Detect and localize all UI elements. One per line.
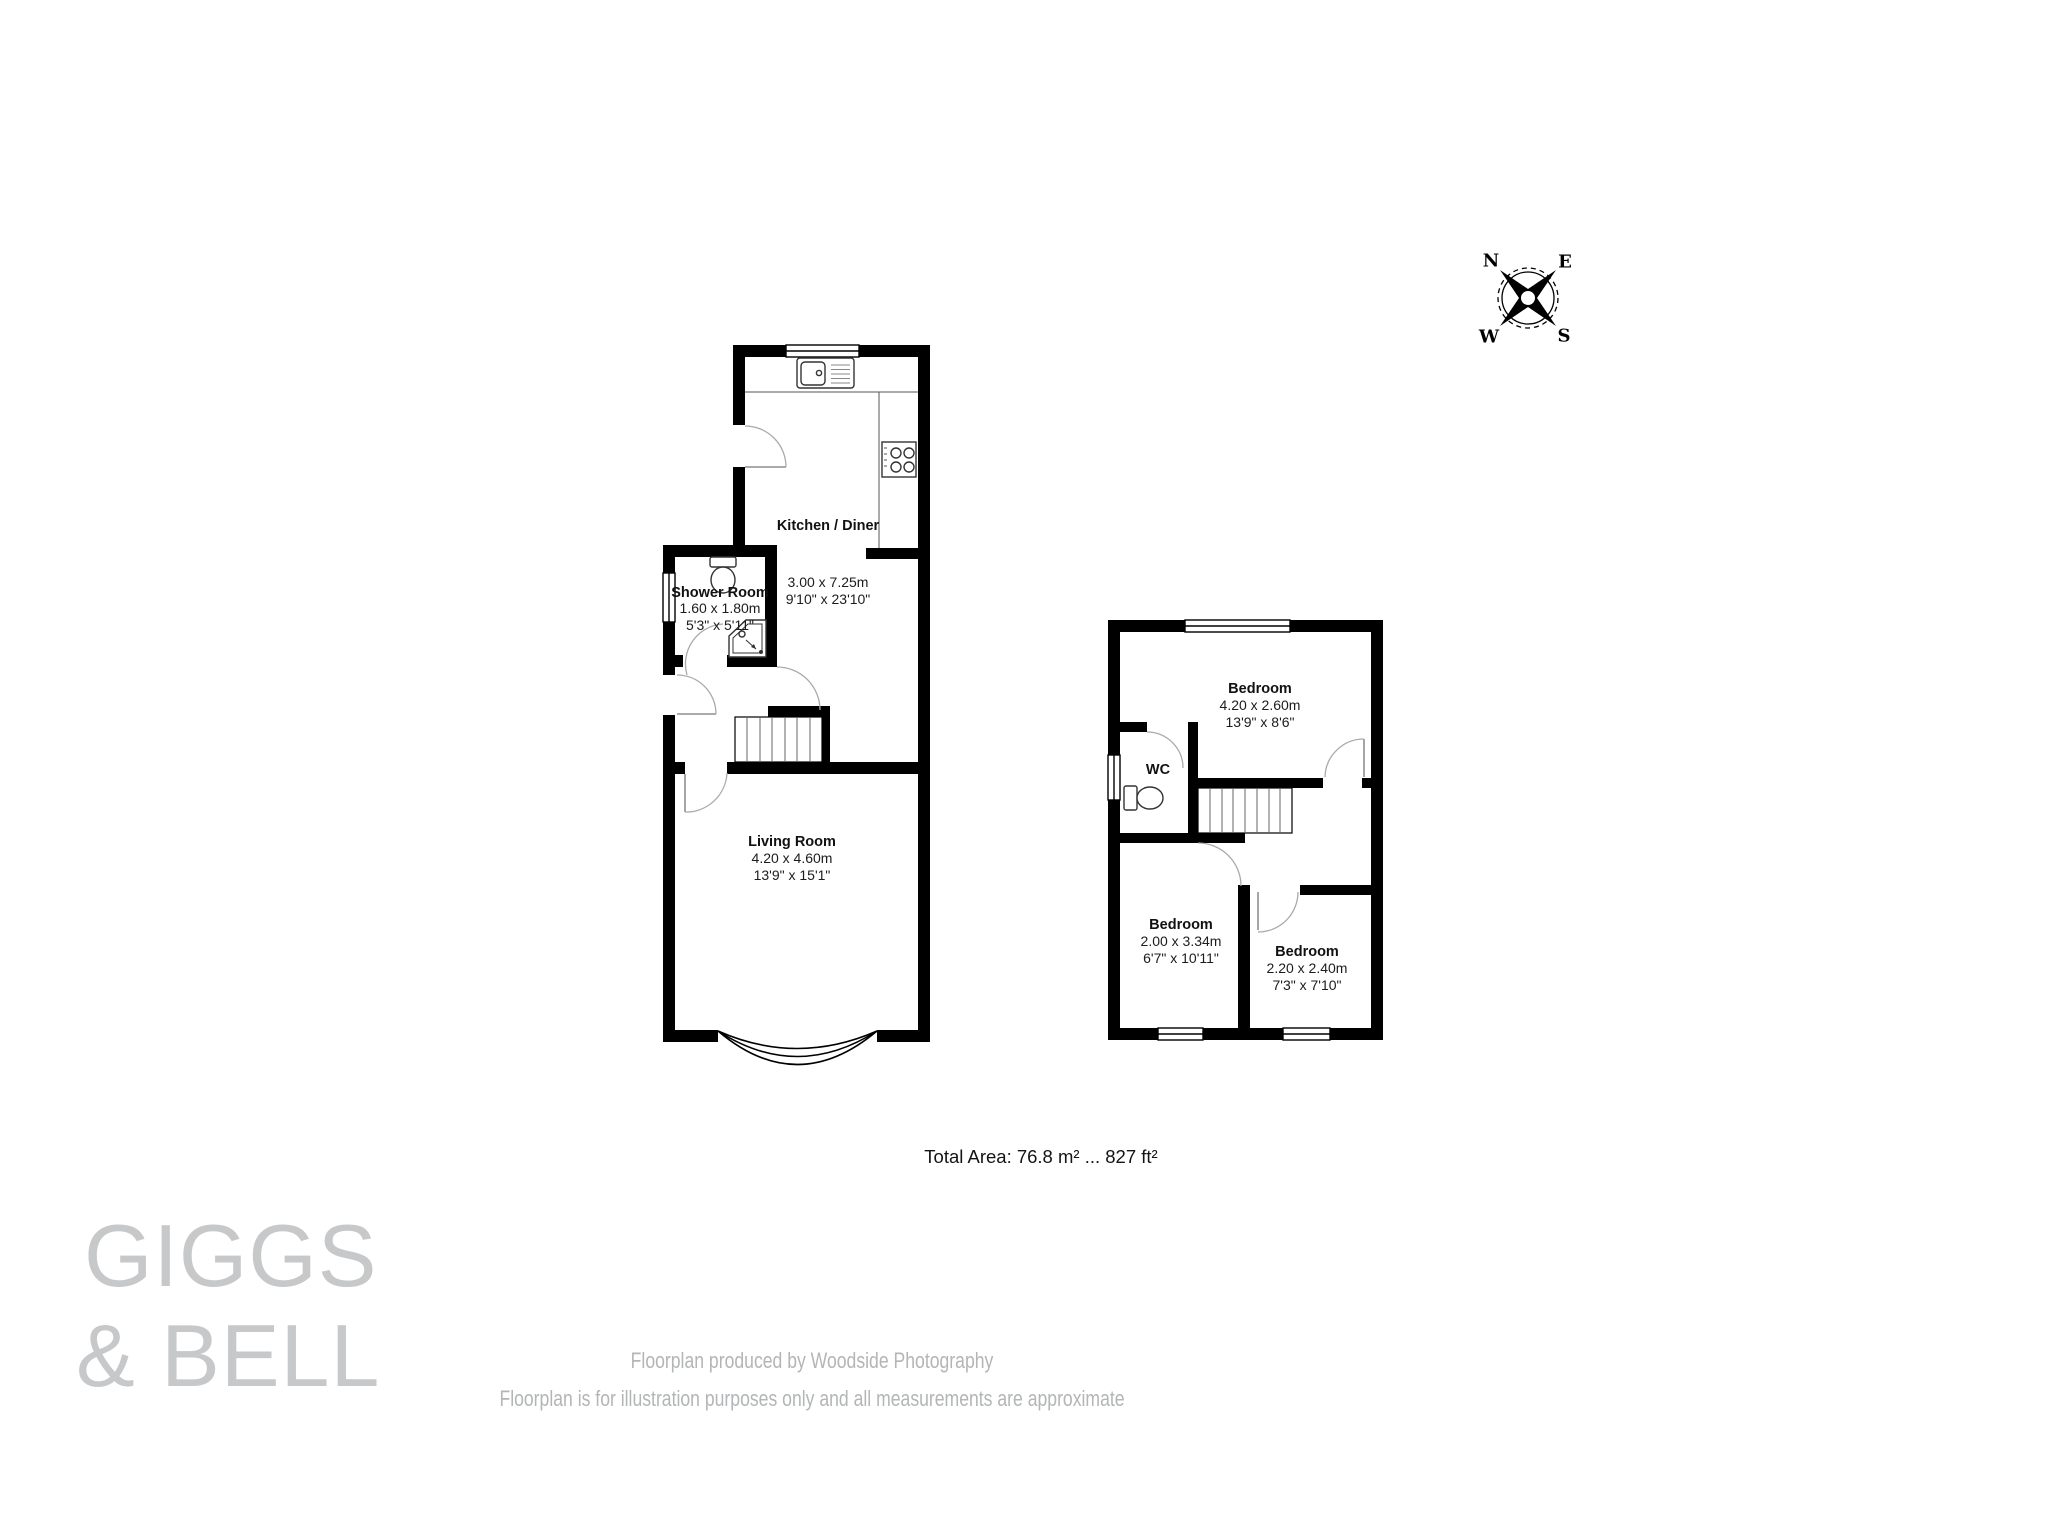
ground-floor-plan bbox=[663, 345, 930, 1065]
room-label-wc: WC bbox=[1146, 762, 1170, 778]
kitchen-window bbox=[786, 345, 859, 357]
room-dims-living-room: 4.20 x 4.60m 13'9" x 15'1" bbox=[752, 850, 833, 883]
room-label-living-room: Living Room bbox=[748, 834, 836, 850]
room-dims-bedroom-3: 2.20 x 2.40m 7'3" x 7'10" bbox=[1267, 960, 1348, 993]
compass-letter-s: S bbox=[1558, 326, 1571, 347]
stairs-ground bbox=[735, 717, 822, 762]
front-door-arc bbox=[677, 675, 716, 714]
bedroom3-window bbox=[1283, 1028, 1330, 1040]
room-dims-bedroom-2: 2.00 x 3.34m 6'7" x 10'11" bbox=[1141, 933, 1222, 966]
compass-rose-icon bbox=[1498, 268, 1558, 328]
logo-text-line2: & BELL bbox=[76, 1312, 380, 1400]
room-dims-kitchen-diner: 3.00 x 7.25m 9'10" x 23'10" bbox=[786, 574, 871, 607]
living-door-arc bbox=[685, 773, 727, 812]
bedroom1-window bbox=[1185, 620, 1290, 632]
room-dims-bedroom-1: 4.20 x 2.60m 13'9" x 8'6" bbox=[1220, 697, 1301, 730]
bedroom2-door-arc bbox=[1198, 843, 1241, 886]
room-dims-shower-room: 1.60 x 1.80m 5'3" x 5'11" bbox=[680, 600, 761, 633]
bedroom3-door-arc bbox=[1258, 892, 1298, 932]
wc-window bbox=[1108, 755, 1120, 800]
stairs-first bbox=[1198, 788, 1292, 833]
room-label-bedroom-1: Bedroom bbox=[1228, 681, 1292, 697]
total-area-text: Total Area: 76.8 m² ... 827 ft² bbox=[924, 1146, 1157, 1168]
bedroom1-door-arc bbox=[1325, 739, 1364, 777]
compass-letter-w: W bbox=[1479, 327, 1499, 348]
toilet-icon-wc bbox=[1124, 786, 1163, 810]
room-label-kitchen-diner: Kitchen / Diner bbox=[777, 518, 879, 534]
bedroom2-window bbox=[1158, 1028, 1203, 1040]
compass-letter-e: E bbox=[1558, 252, 1572, 273]
room-label-shower-room: Shower Room bbox=[671, 585, 768, 601]
floorplan-page: N E W S Kitchen / Diner 3.00 x 7.25m 9'1… bbox=[0, 0, 2048, 1513]
footer-credit-text: Floorplan produced by Woodside Photograp… bbox=[631, 1348, 994, 1374]
room-label-bedroom-3: Bedroom bbox=[1275, 944, 1339, 960]
footer-disclaimer-text: Floorplan is for illustration purposes o… bbox=[499, 1386, 1124, 1412]
logo-text-line1: GIGGS bbox=[84, 1212, 378, 1300]
kitchen-door-arc bbox=[745, 426, 786, 467]
compass-letter-n: N bbox=[1483, 251, 1499, 272]
hall-door-arc bbox=[777, 667, 820, 710]
bay-window bbox=[718, 1031, 877, 1065]
hob-icon bbox=[882, 442, 916, 477]
sink-icon bbox=[797, 358, 854, 388]
room-label-bedroom-2: Bedroom bbox=[1149, 917, 1213, 933]
